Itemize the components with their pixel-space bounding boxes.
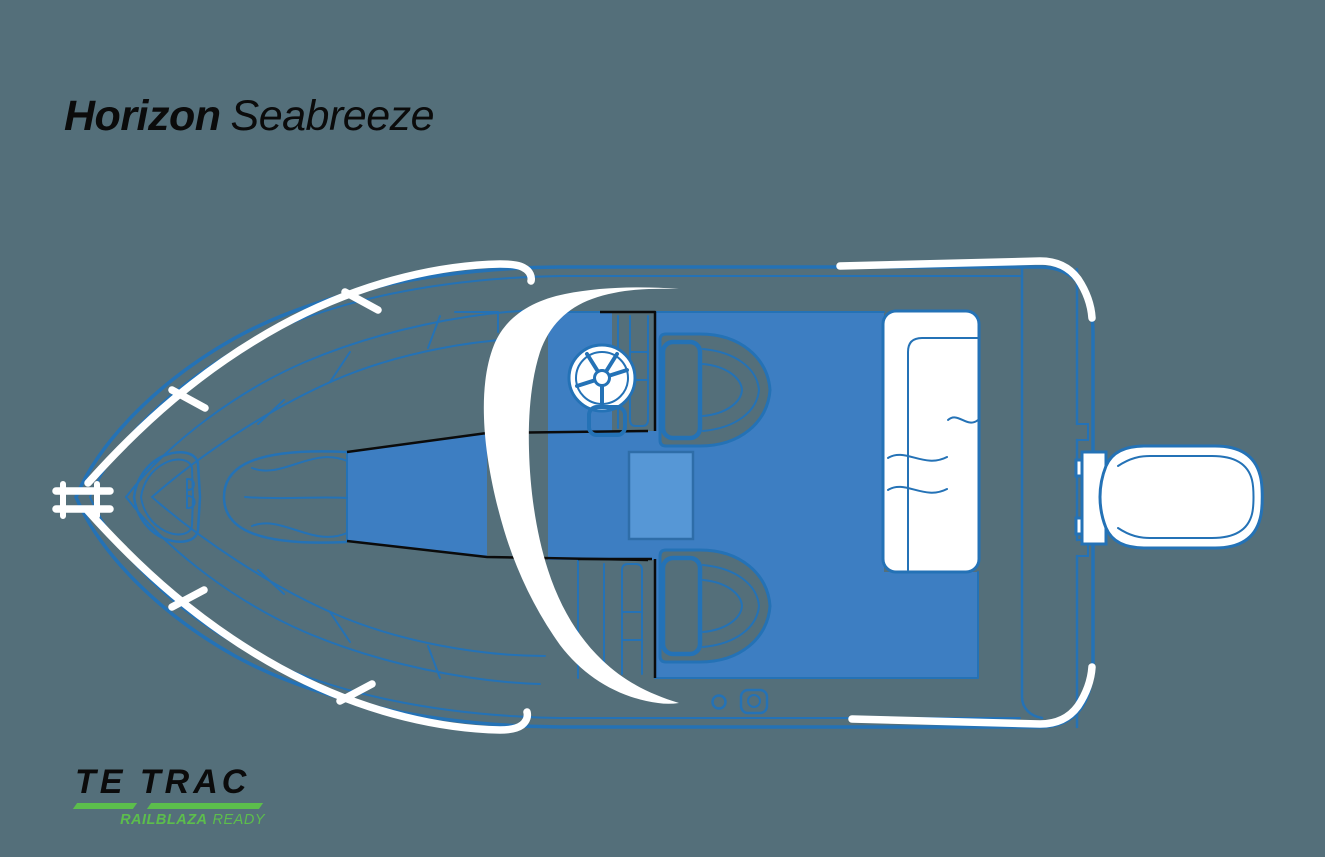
transom <box>1022 269 1088 727</box>
brand-underline <box>75 803 265 810</box>
brand-tagline-strong: RAILBLAZA <box>120 812 207 828</box>
brand-underline-right <box>147 803 263 809</box>
anchor-locker <box>134 452 200 541</box>
brand-tagline: RAILBLAZAREADY <box>75 812 265 828</box>
brand-name: TE TRAC <box>75 763 265 802</box>
bow-cleat-icon <box>56 484 110 516</box>
drain-port-icon <box>713 696 726 709</box>
bow-seating-contours <box>224 451 347 542</box>
canvas: HorizonSeabreeze <box>0 0 1325 857</box>
railblaza-starport-mount-icon <box>741 690 767 713</box>
floor-hatch <box>629 452 693 539</box>
brand-tagline-rest: READY <box>213 812 265 828</box>
walkthrough-passage <box>347 433 487 557</box>
brand-underline-left <box>73 803 137 809</box>
outboard-motor <box>1076 446 1262 548</box>
brand-logo: TE TRAC RAILBLAZAREADY <box>75 763 265 828</box>
steering-wheel-icon <box>569 345 635 411</box>
boat-top-view-diagram <box>0 0 1325 857</box>
stern-bench <box>883 311 979 572</box>
